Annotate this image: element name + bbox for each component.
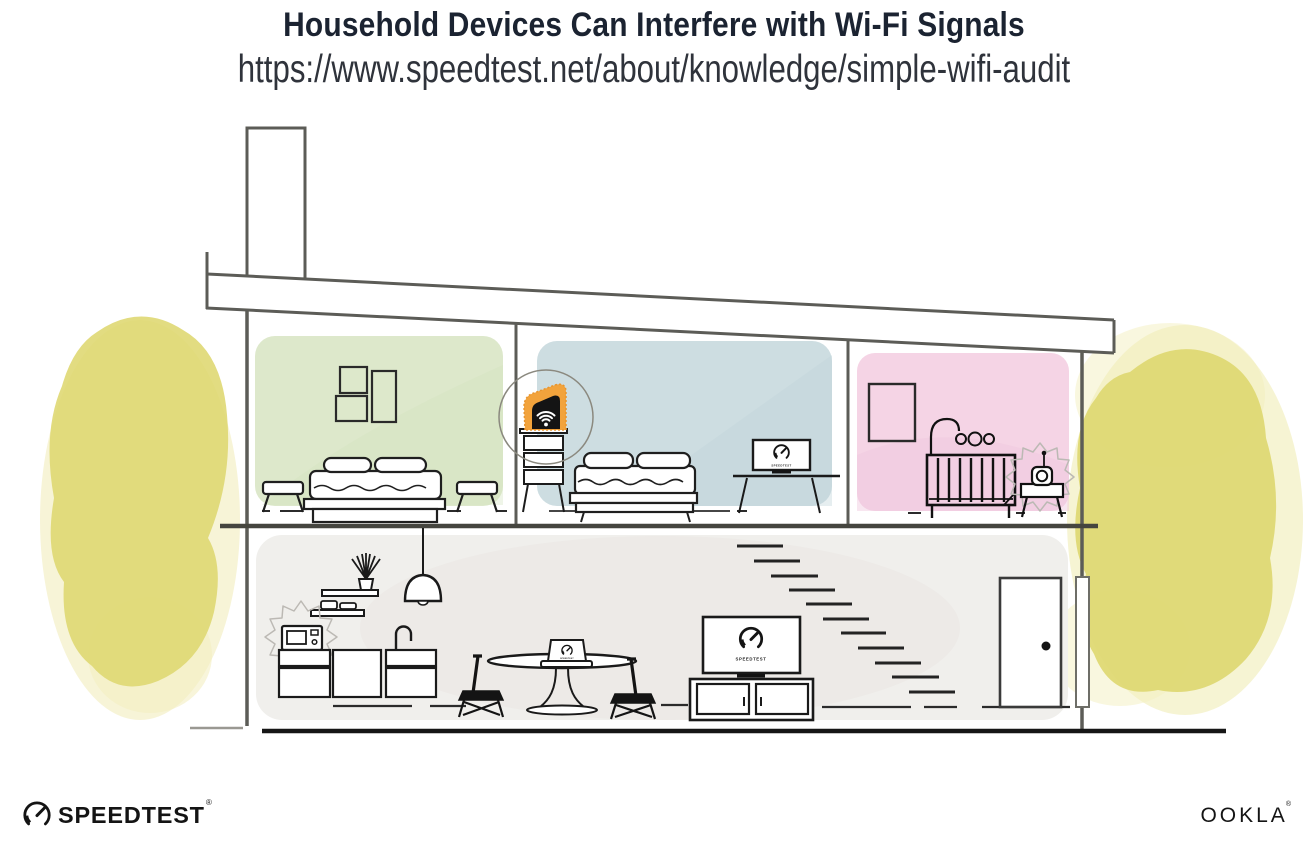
bed-legs: [581, 512, 690, 522]
ookla-logo: OOKLA®: [1200, 804, 1296, 828]
tv-stand-bar: [737, 674, 765, 678]
speedtest-gauge-icon: [22, 800, 52, 830]
lamp-bulb: [418, 601, 428, 605]
plant-vase: [359, 579, 373, 590]
stool-seat: [457, 482, 497, 494]
bed: [570, 453, 697, 522]
monitor-screen-label: SPEEDTEST: [771, 464, 791, 468]
entry: [1000, 577, 1089, 707]
drawer: [524, 436, 563, 450]
chimney: [247, 128, 305, 280]
drawer: [524, 470, 563, 484]
monitor-stand: [772, 470, 791, 474]
laptop-screen-label: SPEEDTEST: [560, 658, 574, 660]
kitchen-cabinet: [333, 650, 381, 697]
bed-platform: [304, 499, 445, 509]
door-knob: [1042, 642, 1051, 651]
page-url: https://www.speedtest.net/about/knowledg…: [131, 48, 1177, 92]
chair-seat: [611, 694, 655, 703]
kitchen-cabinet: [386, 668, 436, 697]
chair-seat: [459, 691, 503, 700]
antenna-tip: [1042, 451, 1047, 456]
pillow: [637, 453, 690, 468]
crib-bars: [938, 458, 1004, 502]
foliage-core: [1075, 349, 1276, 692]
cup: [321, 601, 337, 609]
laptop-keyboard: [541, 661, 592, 667]
page-title: Household Devices Can Interfere with Wi-…: [78, 6, 1229, 45]
bed-base: [576, 503, 693, 512]
speedtest-logo: SPEEDTEST®: [22, 800, 209, 830]
downspout: [1076, 577, 1089, 707]
cabinet-door: [697, 684, 749, 714]
ground-floor-wash: [360, 536, 960, 720]
registered-mark: ®: [206, 798, 213, 807]
foliage-left: [40, 316, 240, 720]
registered-mark: ®: [1286, 801, 1294, 808]
stool-seat: [263, 482, 303, 494]
bed-platform: [570, 493, 697, 503]
pillow: [375, 458, 426, 472]
tv-cabinet: [690, 679, 813, 720]
pillow: [324, 458, 371, 472]
tv: SPEEDTEST: [703, 617, 800, 678]
kitchen-drawer: [279, 650, 330, 666]
speedtest-wordmark: SPEEDTEST®: [58, 802, 212, 829]
house-illustration: SPEEDTEST: [0, 0, 1308, 861]
wifi-dot: [544, 423, 548, 427]
drawer: [524, 453, 563, 467]
ookla-wordmark: OOKLA: [1200, 804, 1287, 827]
tv-screen-label: SPEEDTEST: [736, 657, 767, 662]
microwave: [282, 626, 322, 650]
mattress: [310, 471, 441, 499]
pillow: [584, 453, 633, 468]
tv-screen: [703, 617, 800, 673]
bed-base: [313, 509, 437, 522]
microwave-button: [311, 630, 318, 635]
baby-monitor-body: [1032, 467, 1052, 485]
kitchen-cabinet: [279, 668, 330, 697]
bed: [304, 458, 445, 522]
bowl: [340, 603, 356, 609]
microwave-window: [287, 631, 306, 644]
table-base: [527, 706, 597, 715]
front-door: [1000, 578, 1061, 707]
footer: SPEEDTEST® OOKLA®: [0, 796, 1308, 840]
cabinet-door: [756, 684, 808, 714]
kitchen-drawer: [386, 650, 436, 666]
foliage-core: [50, 316, 229, 686]
